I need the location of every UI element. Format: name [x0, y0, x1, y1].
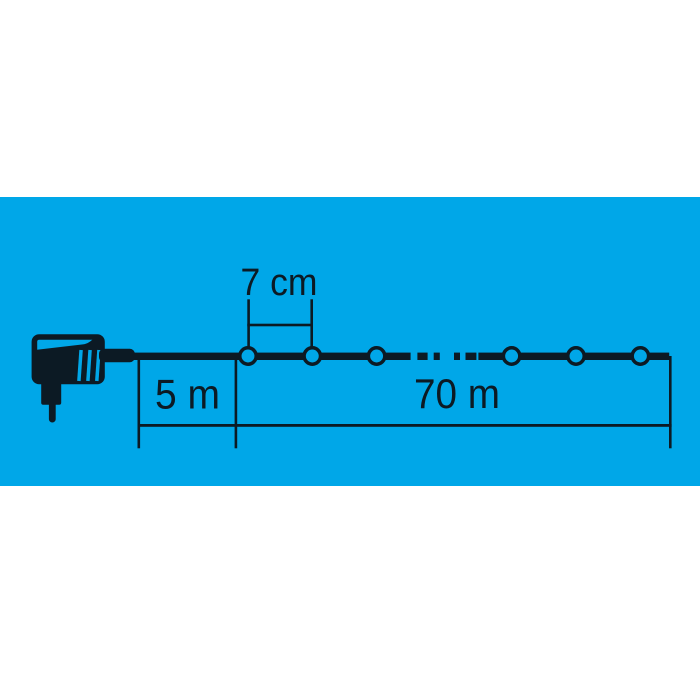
svg-text:7 cm: 7 cm — [241, 262, 318, 304]
svg-text:5 m: 5 m — [155, 371, 220, 418]
svg-text:70 m: 70 m — [414, 370, 500, 417]
